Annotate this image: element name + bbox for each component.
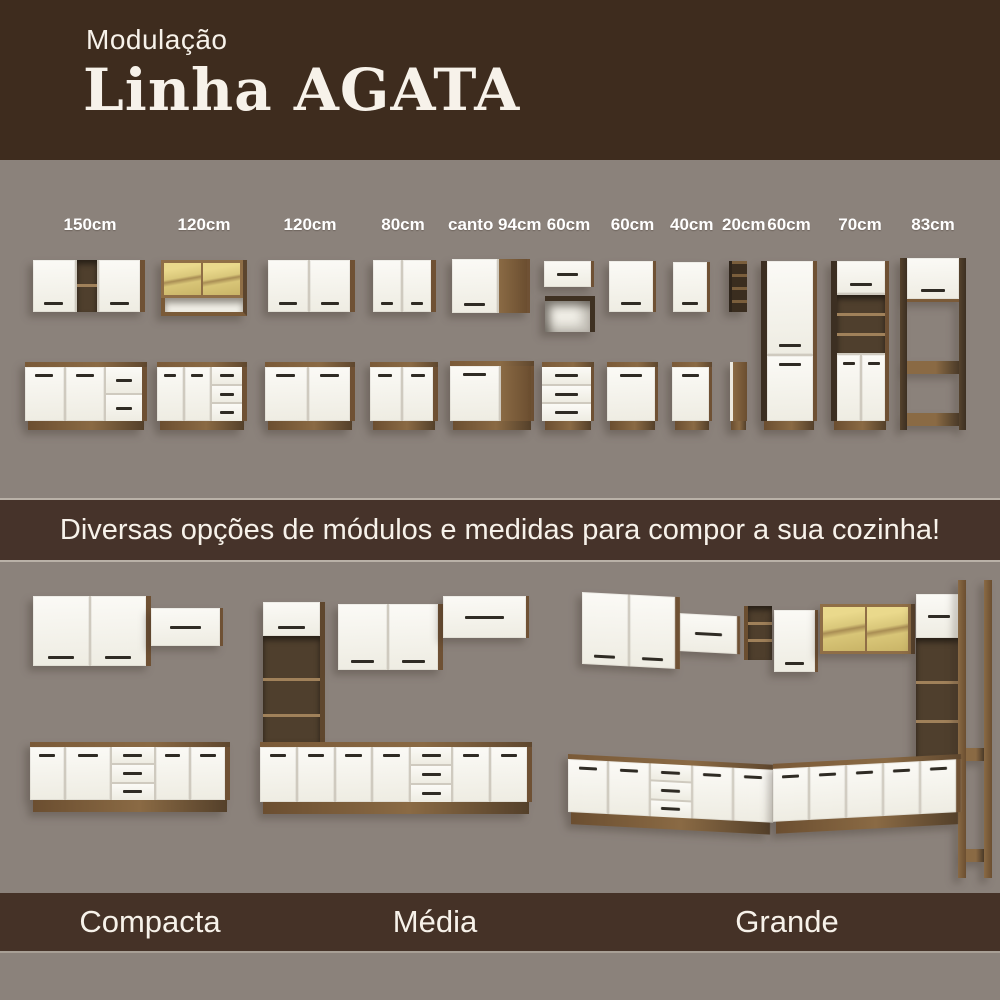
wall-cabinet-150cm <box>33 260 145 312</box>
wall-cabinet-120cm <box>268 260 355 312</box>
promo-banner: Diversas opções de módulos e medidas par… <box>0 498 1000 562</box>
drawer-stack <box>112 747 154 800</box>
module-size-label: 70cm <box>830 215 890 235</box>
cabinet-front <box>151 608 223 646</box>
module-column-120cm-glass: 120cm <box>155 215 253 447</box>
plinth <box>731 421 746 430</box>
cabinet-front <box>773 759 961 822</box>
drawer <box>411 747 451 764</box>
cabinet-door <box>672 367 709 421</box>
door-handle <box>381 302 394 305</box>
corner-wood-panel <box>499 259 527 313</box>
cabinet-door <box>837 261 885 293</box>
cabinet-door <box>767 261 813 354</box>
open-shelves <box>837 295 885 353</box>
base-cabinet-corner <box>450 361 534 430</box>
door-handle <box>200 754 216 757</box>
shelf <box>837 333 885 336</box>
module-size-label: 40cm <box>670 215 712 235</box>
glass-door <box>164 263 201 295</box>
cabinet-door <box>921 759 956 814</box>
cabinet-front <box>761 261 817 421</box>
cabinet-front <box>268 260 355 312</box>
wall-cabinet <box>33 596 151 666</box>
cabinet-door <box>403 260 431 312</box>
glass-door <box>867 607 909 651</box>
base-cabinet-run <box>30 742 230 812</box>
module-size-label: 60cm <box>605 215 660 235</box>
cabinet-door <box>370 367 401 421</box>
plinth <box>610 421 655 430</box>
cabinet-front <box>452 259 530 313</box>
door-handle <box>868 362 880 365</box>
narrow-wood-cabinet <box>730 362 747 421</box>
drawer-stack <box>411 747 451 802</box>
door-handle <box>464 303 485 306</box>
cabinet-front <box>831 261 889 421</box>
tall-cabinet-70cm <box>831 261 889 430</box>
door-handle <box>819 773 835 777</box>
door-handle <box>779 363 800 366</box>
module-size-label: 120cm <box>262 215 358 235</box>
cabinet-door <box>185 367 211 421</box>
cabinet-front <box>370 367 438 421</box>
wall-shelf-20cm <box>729 261 747 312</box>
door-handle <box>279 302 297 305</box>
header-kicker: Modulação <box>86 24 227 56</box>
module-size-label: canto 94cm <box>448 215 534 235</box>
plinth <box>834 421 886 430</box>
cabinet-door <box>310 260 350 312</box>
fridge-frame-83cm <box>900 258 966 430</box>
cabinet-door <box>568 759 607 814</box>
door-handle <box>321 302 339 305</box>
glass-cabinet <box>161 260 247 298</box>
cabinet-front <box>544 261 594 287</box>
cabinet-door <box>91 596 147 666</box>
plinth <box>453 421 531 430</box>
plinth <box>263 802 529 814</box>
door-handle <box>191 374 203 377</box>
drawer-handle <box>555 374 578 377</box>
banner-text: Diversas opções de módulos e medidas par… <box>60 514 940 547</box>
door-handle <box>921 289 945 292</box>
cabinet-door <box>191 747 225 800</box>
cabinet-front <box>33 260 145 312</box>
cabinet-front <box>25 367 147 421</box>
module-column-60cm-niche: 60cm <box>541 215 596 447</box>
base-cabinet-120cm-doors <box>265 362 355 430</box>
base-cabinet-run-left <box>568 754 773 835</box>
shelf <box>77 284 97 287</box>
plinth <box>28 421 144 430</box>
door-handle <box>779 344 800 347</box>
drawer-handle <box>123 754 142 757</box>
wood-crossbar <box>907 361 959 374</box>
plinth <box>675 421 709 430</box>
drawer-stack <box>542 367 591 421</box>
door-handle <box>105 656 131 659</box>
cabinet-door <box>265 367 307 421</box>
frame-body <box>900 258 966 430</box>
cabinet-door <box>66 747 110 800</box>
cabinet-door <box>443 596 526 638</box>
cabinet-front <box>373 260 436 312</box>
door-handle <box>782 775 798 779</box>
cabinet-door <box>373 260 401 312</box>
cabinet-door <box>673 262 707 312</box>
drawer <box>651 800 691 818</box>
drawer-handle <box>123 790 142 793</box>
wall-cabinet-corner <box>452 259 530 313</box>
door-handle <box>78 754 98 757</box>
cabinet-front <box>582 592 680 669</box>
door-handle <box>856 771 872 775</box>
module-column-120cm: 120cm <box>262 215 358 447</box>
cabinet-door <box>30 747 64 800</box>
cabinet-front <box>672 367 712 421</box>
wall-cabinet-extension <box>151 608 223 646</box>
cabinet-door <box>66 367 105 421</box>
cabinet-door <box>491 747 527 802</box>
cabinet-door <box>157 367 183 421</box>
drawer-handle <box>116 379 133 382</box>
module-size-label: 20cm <box>722 215 756 235</box>
cabinet-front <box>30 747 230 800</box>
glass-wall-cabinet <box>820 604 915 654</box>
open-niche <box>545 296 595 332</box>
drawer-handle <box>422 754 440 757</box>
cabinet-door <box>544 261 591 287</box>
door-handle <box>278 626 304 629</box>
cabinet-door <box>774 610 815 672</box>
door-handle <box>463 373 486 376</box>
wall-cabinet-run-left <box>582 592 742 680</box>
cabinet-door <box>582 592 628 666</box>
module-size-label: 60cm <box>760 215 818 235</box>
module-column-70cm: 70cm <box>830 215 890 447</box>
door-handle <box>39 754 55 757</box>
cabinet-door <box>450 366 499 421</box>
cabinet-door <box>609 761 648 816</box>
base-cabinet-150cm <box>25 362 147 430</box>
door-handle <box>76 374 94 377</box>
cabinet-front <box>542 367 594 421</box>
cabinet-door <box>33 596 89 666</box>
plinth <box>545 421 591 430</box>
drawer-stack <box>106 367 142 421</box>
cabinet-door <box>884 761 919 816</box>
cabinet-door <box>862 355 885 421</box>
door-handle <box>378 374 392 377</box>
wood-post <box>984 580 992 878</box>
cabinet-door <box>773 767 808 822</box>
plinth <box>160 421 244 430</box>
shelf <box>748 622 772 625</box>
door-handle <box>320 374 339 377</box>
cabinet-door <box>336 747 372 802</box>
drawer <box>411 785 451 802</box>
door-handle <box>170 626 202 629</box>
open-shelf <box>77 260 97 312</box>
door-handle <box>44 302 63 305</box>
cabinet-door <box>847 763 882 818</box>
wall-cabinet-120cm-glass <box>161 260 247 316</box>
cabinet-door <box>607 367 655 421</box>
shelf <box>263 714 320 717</box>
drawer <box>112 747 154 763</box>
module-size-label: 60cm <box>541 215 596 235</box>
drawer-handle <box>661 771 679 775</box>
tall-shelf-unit <box>263 602 325 742</box>
shelf <box>263 678 320 681</box>
header: Modulação Linha AGATA <box>0 0 1000 160</box>
cabinet-door <box>25 367 64 421</box>
module-column-40cm: 40cm <box>670 215 712 447</box>
drawer <box>112 784 154 800</box>
module-column-60cm: 60cm <box>605 215 660 447</box>
door-handle <box>850 283 872 286</box>
cabinet-door <box>99 260 141 312</box>
cabinet-door <box>403 367 434 421</box>
wall-cabinet-60cm-horizontal <box>544 261 594 287</box>
drawer <box>411 766 451 783</box>
door-handle <box>682 374 699 377</box>
door-handle <box>620 769 638 773</box>
open-shelf-column <box>729 261 747 312</box>
glass-door <box>203 263 240 295</box>
door-handle <box>621 302 641 305</box>
drawer <box>542 404 591 421</box>
base-cabinet-80cm <box>370 362 438 430</box>
cabinet-door <box>263 602 320 636</box>
drawer <box>212 404 242 421</box>
wood-crossbar <box>907 413 959 426</box>
cabinet-front <box>568 759 773 823</box>
module-column-83cm: 83cm <box>898 215 968 447</box>
cabinet-door <box>298 747 334 802</box>
wall-cabinet-80cm <box>373 260 436 312</box>
door-handle <box>785 662 804 665</box>
cabinet-front <box>443 596 529 638</box>
door-handle <box>351 660 374 663</box>
door-handle <box>276 374 295 377</box>
door-row <box>837 355 885 421</box>
cabinet-door <box>373 747 409 802</box>
door-handle <box>843 362 855 365</box>
cabinet-front <box>774 610 818 672</box>
drawer-handle <box>220 393 234 396</box>
door-handle <box>703 773 721 777</box>
base-cabinet-40cm <box>672 362 712 430</box>
module-column-150cm: 150cm <box>25 215 155 447</box>
drawer-handle <box>116 407 133 410</box>
wood-crossbar <box>966 748 984 761</box>
kitchen-label-grande: Grande <box>687 893 887 953</box>
cabinet-front <box>450 366 534 421</box>
cabinet-front <box>265 367 355 421</box>
door-handle <box>744 775 762 779</box>
kitchen-media <box>258 564 543 894</box>
door-handle <box>383 754 399 757</box>
cabinet-door <box>156 747 190 800</box>
drawer <box>651 782 691 800</box>
cabinet-door <box>734 768 773 823</box>
drawer-handle <box>123 772 142 775</box>
cabinet-front <box>607 367 658 421</box>
wall-niche-60cm <box>545 296 595 332</box>
cabinet-door <box>33 260 75 312</box>
cabinet-door <box>309 367 351 421</box>
kitchen-label-media: Média <box>335 893 535 953</box>
door-handle <box>402 660 425 663</box>
door-handle <box>270 754 286 757</box>
cabinet-door <box>609 261 653 312</box>
door-handle <box>463 754 479 757</box>
drawer <box>106 367 142 393</box>
top-cabinet-door <box>907 258 959 302</box>
door-handle <box>682 302 698 305</box>
cabinet-front <box>33 596 151 666</box>
drawer <box>542 367 591 384</box>
page-title: Linha AGATA <box>83 56 520 124</box>
open-shelf <box>161 298 247 316</box>
kitchen-compacta <box>25 564 260 894</box>
module-column-20cm: 20cm <box>722 215 756 447</box>
cabinet-door <box>389 604 438 670</box>
module-column-canto-94cm: canto 94cm <box>448 215 534 447</box>
drawer-handle <box>555 411 578 414</box>
cabinet-door <box>693 766 732 821</box>
door-handle <box>110 302 129 305</box>
door-handle <box>35 374 53 377</box>
base-cabinet-run-right <box>773 754 961 834</box>
door-handle <box>557 273 579 276</box>
kitchen-label-compacta: Compacta <box>50 893 250 953</box>
base-cabinet-run <box>260 742 532 814</box>
door-handle <box>164 374 176 377</box>
wood-post <box>959 258 966 430</box>
wall-cabinet-40cm <box>673 262 710 312</box>
drawer-handle <box>220 374 234 377</box>
cabinet-door <box>767 356 813 421</box>
cabinet-door <box>338 604 387 670</box>
module-size-label: 120cm <box>155 215 253 235</box>
cabinet-door <box>268 260 308 312</box>
cabinet-extension <box>680 613 740 654</box>
door-handle <box>48 656 74 659</box>
door-handle <box>411 374 425 377</box>
wall-cabinet-60cm <box>609 261 656 312</box>
cabinet-door <box>810 765 845 820</box>
module-size-label: 80cm <box>368 215 438 235</box>
door-handle <box>345 754 361 757</box>
drawer-stack <box>651 763 691 818</box>
cabinet-door <box>151 608 220 646</box>
door-handle <box>620 374 642 377</box>
base-cabinet-60cm-drawers <box>542 362 594 430</box>
module-column-80cm: 80cm <box>368 215 438 447</box>
base-cabinet-120cm <box>157 362 247 430</box>
door-handle <box>695 631 721 635</box>
wall-cabinet <box>338 604 443 670</box>
kitchen-labels-footer: Compacta Média Grande <box>0 893 1000 953</box>
cabinet-front <box>157 367 247 421</box>
drawer-handle <box>220 411 234 414</box>
glass-door <box>823 607 865 651</box>
open-shelves <box>263 636 320 742</box>
drawer <box>106 395 142 421</box>
drawer-handle <box>422 792 440 795</box>
drawer-stack <box>212 367 242 421</box>
plinth <box>764 421 814 430</box>
shelf <box>837 313 885 316</box>
cabinet-door <box>452 259 497 313</box>
corner-open-shelves <box>744 606 772 660</box>
wood-post <box>958 580 966 878</box>
door-handle <box>928 615 949 618</box>
cabinet-door <box>453 747 489 802</box>
base-cabinet-20cm <box>730 362 747 430</box>
kitchen-grande <box>560 564 995 894</box>
cabinet-door <box>837 355 860 421</box>
base-cabinet-60cm <box>607 362 658 430</box>
cabinet-door <box>630 594 676 668</box>
door-handle <box>465 616 503 619</box>
plinth <box>33 800 227 812</box>
fridge-frame <box>958 580 992 878</box>
plinth <box>268 421 352 430</box>
drawer-handle <box>661 789 679 793</box>
glass-cabinet <box>820 604 915 654</box>
cabinet-front <box>673 262 710 312</box>
cabinet-door <box>680 613 737 654</box>
wall-cabinet-single <box>774 610 818 672</box>
drawer <box>542 386 591 403</box>
door-handle <box>594 655 615 659</box>
product-sheet: Modulação Linha AGATA 150cm <box>0 0 1000 1000</box>
module-size-label: 83cm <box>898 215 968 235</box>
drawer <box>212 386 242 403</box>
drawer-handle <box>555 393 578 396</box>
door-handle <box>930 767 946 771</box>
module-size-label: 150cm <box>25 215 155 235</box>
drawer-handle <box>661 807 679 811</box>
door-handle <box>308 754 324 757</box>
door-handle <box>893 769 909 773</box>
wood-post <box>900 258 907 430</box>
door-handle <box>642 657 663 661</box>
door-handle <box>165 754 181 757</box>
door-handle <box>579 767 597 771</box>
wood-crossbar <box>966 849 984 862</box>
cabinet-front <box>609 261 656 312</box>
corner-wood-door <box>501 366 531 421</box>
module-column-60cm-tall: 60cm <box>760 215 818 447</box>
drawer <box>651 763 691 781</box>
cabinet-door <box>260 747 296 802</box>
tall-cabinet-60cm <box>761 261 817 430</box>
cabinet-front <box>260 747 532 802</box>
cabinet-front <box>338 604 443 670</box>
plinth <box>373 421 435 430</box>
drawer <box>112 765 154 781</box>
drawer <box>212 367 242 384</box>
wall-cabinet-extension <box>443 596 529 638</box>
shelf <box>748 639 772 642</box>
door-handle <box>501 754 517 757</box>
door-handle <box>411 302 424 305</box>
